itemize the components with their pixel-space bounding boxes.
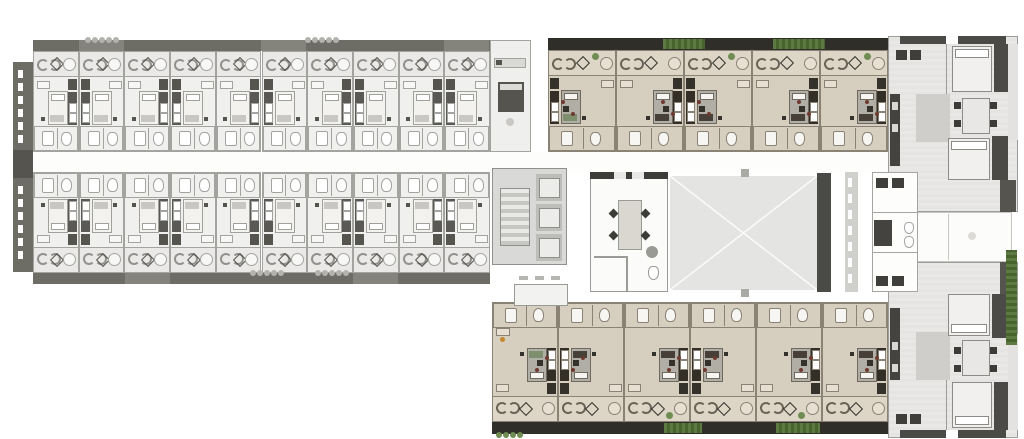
bed-icon [413,199,433,233]
toilet-icon [153,132,164,146]
closet-door-icon [447,103,455,113]
closet-door-icon [251,113,259,123]
closet-door-icon [69,103,77,113]
lounge-chair-icon [174,253,186,265]
sink-icon [892,364,898,372]
wall-segment [1000,180,1016,212]
balcony-table-icon [245,58,258,71]
guest-room [492,302,558,422]
tv-unit [686,78,695,89]
plant-icon [106,37,112,43]
balcony-rug [644,56,658,70]
plant-icon [312,37,318,43]
closet-door-icon [434,211,442,221]
west-wing-south-row [33,172,490,273]
guest-room [444,51,490,152]
toilet-icon [107,132,118,146]
bed-icon [183,199,203,233]
closet-door-icon [69,211,77,221]
shower-icon [703,308,715,323]
bed-throw [94,115,108,122]
elevator-core [492,168,567,265]
balcony-table-icon [474,253,487,266]
balcony-rug [717,402,731,416]
bed-pillow [792,93,806,100]
wardrobe [692,348,701,381]
guest-room [752,50,820,152]
chair-icon [954,347,961,354]
chair-icon [954,102,961,109]
bathroom [125,173,169,198]
window-icon [18,238,23,246]
bed-throw [793,351,807,358]
cafe-chair [797,100,801,104]
lounge-chair-icon [700,58,712,70]
toilet-icon [590,132,601,146]
wardrobe [172,199,181,232]
lounge-chair-icon [37,253,49,265]
elevator-icon [536,174,562,201]
vanity-icon [876,178,888,188]
tv-unit [355,79,364,90]
bath-wall [240,175,241,196]
guest-room [399,172,445,273]
window-icon [18,135,23,143]
tv-unit [446,234,455,245]
side-table [506,118,514,126]
wardrobe [992,136,1008,180]
tv-unit [692,383,701,394]
bathroom [821,126,887,151]
bed-pillow [278,223,292,230]
lounge-chair-icon [83,253,95,265]
parapet-gap [946,430,958,438]
wardrobe [446,199,455,232]
desk [628,384,641,392]
lounge-chair-icon [357,253,369,265]
shower-icon [571,308,583,323]
balcony [690,396,756,422]
wardrobe [159,199,168,232]
cafe-chair [571,112,575,116]
wardrobe [877,348,886,381]
closet-door-icon [265,113,273,123]
duct [874,220,892,246]
lounge-chair-icon [174,59,186,71]
cafe-chair [667,368,671,372]
cafe-chair [581,356,585,360]
toilet-icon [904,222,914,234]
window-icon [848,274,852,283]
tv-unit [250,79,259,90]
bed-icon [230,91,250,125]
window-icon [18,122,23,130]
cafe-chair [809,356,813,360]
closet-door-icon [173,113,181,123]
desk [824,80,837,88]
toilet-icon [290,132,301,146]
closet-door-icon [265,211,273,221]
balcony [262,247,308,273]
wardrobe [877,91,886,124]
toilet-icon [199,132,210,146]
bath-wall [872,212,918,213]
lounge-chair-icon [448,253,460,265]
toilet-icon [533,308,544,322]
bed-icon [92,91,112,125]
bathroom [354,126,398,151]
plant-icon [329,270,335,276]
closet-door-icon [82,113,90,123]
bed-throw [459,115,473,122]
closet-door-icon [878,112,886,122]
bed-throw [50,202,64,209]
bath-wall [194,128,195,149]
bed-throw [277,115,291,122]
tv-unit [809,78,818,89]
bed-icon [366,199,386,233]
bath-wall [658,305,659,326]
nightstand [387,203,391,207]
closet-door-icon [356,113,364,123]
shower-icon [88,131,100,146]
toilet-icon [658,132,669,146]
balcony-table-icon [428,58,441,71]
wardrobe [673,91,682,124]
bed-icon [139,199,159,233]
bed-icon [48,91,68,125]
bath-wall [331,128,332,149]
lounge-chair-icon [37,59,49,71]
lounge-chair-icon [836,58,848,70]
shower-icon [835,308,847,323]
nightstand [204,203,208,207]
bath-wall [285,128,286,149]
tv-unit [433,79,442,90]
bath-wall [856,305,857,326]
guest-room [353,51,399,152]
closet-door-icon [810,112,818,122]
bed-pillow [186,223,200,230]
guest-room [444,172,490,273]
tv-unit [342,79,351,90]
courtyard [670,176,817,290]
closet-door-icon [687,102,695,112]
balcony-table-icon [608,402,621,415]
shower-icon [134,178,146,193]
closet-door-icon [343,113,351,123]
bed-pillow [700,93,714,100]
closet-door-icon [173,201,181,211]
wardrobe [433,92,442,125]
bed-icon [952,382,992,428]
tv-unit [673,78,682,89]
shower-icon [629,131,641,146]
nightstand [718,116,722,120]
bed-pillow [662,372,676,379]
bath-wall [377,128,378,149]
toilet-icon [904,236,914,248]
guest-room [616,50,684,152]
plant-icon [315,270,321,276]
plant-icon [278,270,284,276]
shower-icon [362,131,374,146]
bath-wall [148,175,149,196]
balcony [33,51,79,77]
tv-unit [68,79,77,90]
wardrobe [68,199,77,232]
cafe-chair [545,356,549,360]
plant-icon [113,37,119,43]
bathroom [823,303,887,328]
toilet-icon [473,178,484,192]
balcony-table-icon [474,58,487,71]
closet-door-icon [674,102,682,112]
closet-door-icon [160,103,168,113]
bed-pillow [51,94,65,101]
tv-unit [877,78,886,89]
bed-pillow [460,223,474,230]
plant-icon [496,432,502,438]
wardrobe [446,92,455,125]
balcony-rug [783,402,797,416]
parapet-segment [444,40,489,51]
closet-door-icon [878,360,886,370]
window-icon [18,225,23,233]
desk [384,235,397,243]
desk-chair [500,337,505,342]
shower-icon [42,131,54,146]
closet-door-icon [878,350,886,360]
shower-icon [134,131,146,146]
toilet-icon [427,178,438,192]
hedge-icon [773,39,825,49]
bed-pillow [951,141,987,150]
balcony [262,51,308,77]
bathroom [171,173,215,198]
nightstand [582,116,586,120]
hedge-icon [664,423,702,433]
lounge-chair-icon [756,58,768,70]
corridor [15,152,890,172]
bed-pillow [369,94,383,101]
bath-wall [377,175,378,196]
bed-icon [948,138,990,180]
cafe-chair [571,368,575,372]
closet-door-icon [69,201,77,211]
guest-room [33,172,79,273]
lounge-chair-icon [220,59,232,71]
bed-pillow [500,84,522,90]
closet-door-icon [82,201,90,211]
bed-throw [791,114,805,121]
shower-icon [271,178,283,193]
bath-wall [103,128,104,149]
plant-icon [646,246,658,258]
bath-wall [790,305,791,326]
bath-wall [719,128,720,149]
balcony-table-icon [383,253,396,266]
bathroom [685,126,751,151]
bed-pillow [955,416,989,425]
bath-wall [724,305,725,326]
plant-icon [510,432,516,438]
plant-icon [250,270,256,276]
toilet-icon [244,132,255,146]
bathroom [217,173,261,198]
bed-icon [948,294,990,336]
guest-room [690,302,756,422]
bed-throw [277,202,291,209]
bathroom [34,173,78,198]
guest-room [624,302,690,422]
closet-door-icon [561,360,569,370]
chair-icon [990,120,997,127]
tv-unit [81,79,90,90]
cafe-chair [865,368,869,372]
lounge-chair-icon [552,58,564,70]
closet-door-icon [551,102,559,112]
balcony-table-icon [337,253,350,266]
lounge-chair-icon [311,253,323,265]
plant-icon [592,53,599,60]
hedge-icon [1006,250,1017,345]
bed-icon [952,46,992,92]
bath-wall [285,175,286,196]
balcony-rug [576,56,590,70]
balcony [756,396,822,422]
closet-door-icon [160,201,168,211]
closet-door-icon [693,360,701,370]
courtyard-x-icon [670,176,817,290]
studio-room [490,40,531,152]
closet-door-icon [82,103,90,113]
closet-door-icon [674,112,682,122]
toilet-icon [199,178,210,192]
guest-room [216,172,262,273]
toilet-icon [862,132,873,146]
cafe-table [705,360,711,366]
guest-room [124,172,170,273]
wardrobe [550,91,559,124]
wardrobe [355,92,364,125]
tv-unit [560,383,569,394]
balcony [548,50,616,76]
nightstand [478,117,482,121]
desk [109,81,122,89]
lounge-chair-icon [220,253,232,265]
vanity-icon [896,414,907,424]
west-wing-north-row [33,51,490,152]
stairwell-icon [500,188,530,246]
desk [37,235,50,243]
wardrobe [994,382,1008,430]
balcony [752,50,820,76]
wardrobe [679,348,688,381]
shower-icon [765,131,777,146]
bed-pillow [233,94,247,101]
balcony [399,51,445,77]
balcony-table-icon [674,402,687,415]
closet-door-icon [265,201,273,211]
toilet-icon [61,132,72,146]
bath-wall [57,128,58,149]
bed-pillow [186,94,200,101]
toilet-icon [153,178,164,192]
shower-icon [697,131,709,146]
bathroom [263,173,307,198]
bed-icon [413,91,433,125]
plant-icon [728,53,735,60]
lounge-chair-icon [620,58,632,70]
balcony-table-icon [154,253,167,266]
closet-door-icon [343,201,351,211]
desk [384,81,397,89]
balcony [399,247,445,273]
plant-icon [257,270,263,276]
cafe-chair [661,100,665,104]
window-icon [18,83,23,91]
wardrobe [342,199,351,232]
closet-door-icon [447,113,455,123]
lounge-chair-icon [128,253,140,265]
balcony-table-icon [154,58,167,71]
bed-icon [322,199,342,233]
closet-door-icon [173,103,181,113]
window-icon [18,96,23,104]
lounge-chair-icon [562,402,574,414]
bathroom [125,126,169,151]
balcony-table-icon [542,402,555,415]
toilet-icon [336,178,347,192]
lounge-chair-icon [824,58,836,70]
bathroom [559,303,623,328]
bed-pillow [95,223,109,230]
desk [201,235,214,243]
window-icon [18,212,23,220]
balcony [353,247,399,273]
wall-segment [13,62,33,150]
window-icon [848,226,852,235]
balcony-table-icon [668,57,681,70]
bed-throw [185,202,199,209]
bed-pillow [416,223,430,230]
balcony-rug [519,402,533,416]
inner-wall [946,44,947,94]
planter [817,173,831,292]
wardrobe [355,199,364,232]
cafe-table [563,106,569,112]
closet-door-icon [810,102,818,112]
lounge-chair-icon [128,59,140,71]
plant-icon [305,37,311,43]
toilet-icon [381,178,392,192]
closet-door-icon [173,211,181,221]
tv-unit [172,234,181,245]
cafe-chair [535,368,539,372]
desk [403,235,416,243]
plant-icon [333,37,339,43]
plant-icon [503,432,509,438]
cafe-table [573,360,579,366]
parapet-segment [125,273,170,284]
nightstand [223,117,227,121]
shower-icon [505,308,517,323]
desk [220,235,233,243]
closet-door-icon [693,350,701,360]
wardrobe [433,199,442,232]
closet-door-icon [251,103,259,113]
